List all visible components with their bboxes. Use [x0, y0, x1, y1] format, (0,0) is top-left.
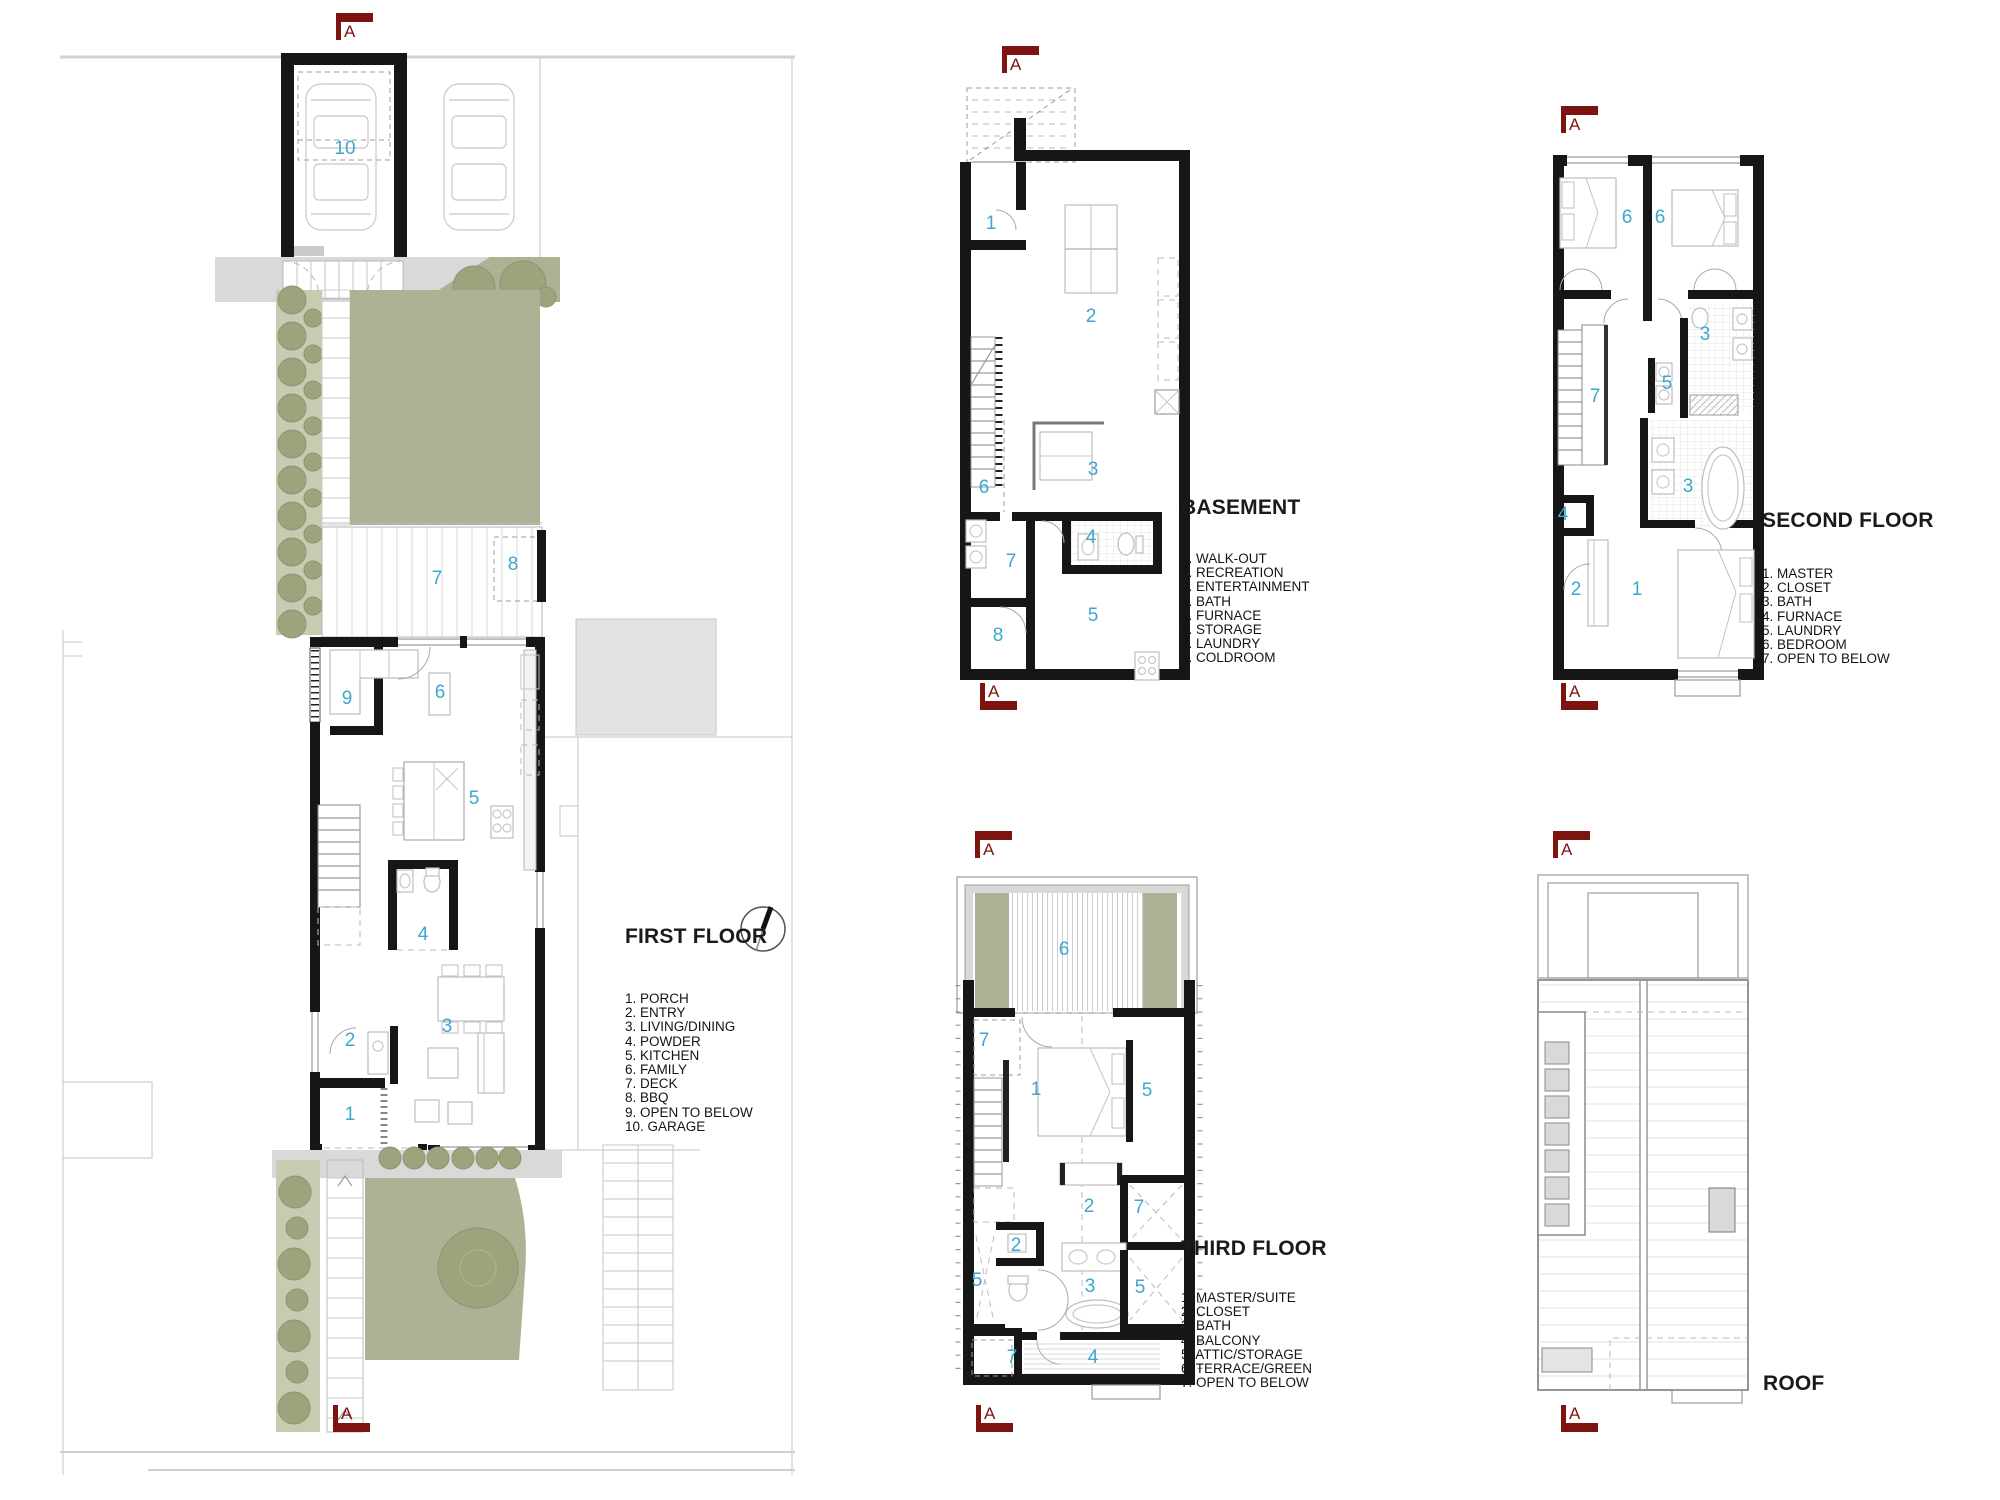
room-number: 7	[1006, 551, 1017, 573]
room-number: 4	[1088, 1347, 1099, 1369]
room-number: 10	[334, 138, 355, 160]
room-number: 4	[418, 924, 429, 946]
room-number: 3	[1088, 459, 1099, 481]
room-number: 7	[1134, 1197, 1145, 1219]
room-number: 8	[508, 554, 519, 576]
room-number: 6	[1655, 207, 1666, 229]
room-number: 7	[1590, 386, 1601, 408]
room-number-layer: 1078965432112634758663573421671527253574	[0, 0, 2000, 1500]
room-number: 3	[442, 1016, 453, 1038]
room-number: 5	[1662, 373, 1673, 395]
room-number: 7	[432, 568, 443, 590]
room-number: 1	[986, 213, 997, 235]
room-number: 5	[469, 788, 480, 810]
room-number: 6	[435, 682, 446, 704]
room-number: 7	[1007, 1347, 1018, 1369]
room-number: 2	[345, 1030, 356, 1052]
room-number: 9	[342, 688, 353, 710]
room-number: 2	[1084, 1196, 1095, 1218]
room-number: 2	[1571, 579, 1582, 601]
room-number: 6	[1059, 939, 1070, 961]
room-number: 8	[993, 625, 1004, 647]
room-number: 2	[1011, 1235, 1022, 1257]
room-number: 4	[1558, 504, 1569, 526]
room-number: 1	[1031, 1079, 1042, 1101]
room-number: 6	[979, 477, 990, 499]
floor-plan-sheet: FIRST FLOOR BASEMENT SECOND FLOOR THIRD …	[0, 0, 2000, 1500]
room-number: 3	[1683, 476, 1694, 498]
room-number: 7	[979, 1030, 990, 1052]
room-number: 5	[1142, 1080, 1153, 1102]
room-number: 1	[345, 1104, 356, 1126]
room-number: 2	[1086, 306, 1097, 328]
room-number: 1	[1632, 579, 1643, 601]
room-number: 5	[972, 1270, 983, 1292]
room-number: 6	[1622, 207, 1633, 229]
room-number: 5	[1088, 605, 1099, 627]
room-number: 5	[1135, 1277, 1146, 1299]
room-number: 3	[1085, 1276, 1096, 1298]
room-number: 3	[1700, 324, 1711, 346]
room-number: 4	[1086, 527, 1097, 549]
